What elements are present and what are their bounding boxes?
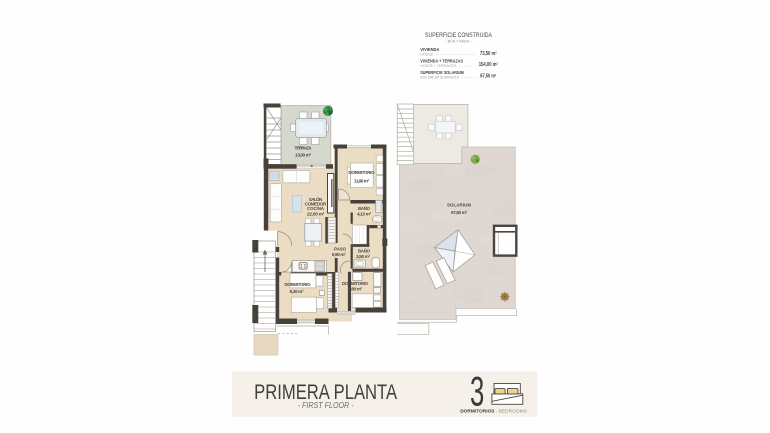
svg-text:- BUILT AREA -: - BUILT AREA -	[445, 39, 472, 44]
svg-text:BAÑO: BAÑO	[358, 249, 371, 254]
svg-text:0,90 m²: 0,90 m²	[332, 252, 346, 257]
svg-text:COCINA: COCINA	[307, 206, 325, 211]
svg-text:BAÑO: BAÑO	[358, 206, 371, 211]
svg-text:DORMITORIO: DORMITORIO	[349, 170, 376, 175]
svg-text:DORMITORIOS - BEDROOMS: DORMITORIOS - BEDROOMS	[460, 409, 527, 415]
svg-text:- FIRST FLOOR -: - FIRST FLOOR -	[298, 401, 354, 410]
svg-text:8,80 m²: 8,80 m²	[348, 287, 362, 292]
svg-text:67,50 m²: 67,50 m²	[451, 210, 467, 215]
svg-text:TERRAZA: TERRAZA	[295, 146, 313, 151]
svg-text:3,50 m²: 3,50 m²	[356, 254, 370, 259]
svg-text:22,00 m²: 22,00 m²	[307, 212, 325, 217]
svg-text:9,20 m²: 9,20 m²	[290, 289, 304, 294]
svg-text:HOUSE + TERRACES: HOUSE + TERRACES	[420, 63, 456, 68]
svg-text:SOLARIUM SURFACES: SOLARIUM SURFACES	[420, 74, 459, 79]
svg-text:67,50 m²: 67,50 m²	[480, 74, 496, 80]
svg-text:13,00 m²: 13,00 m²	[295, 153, 311, 158]
svg-text:PASO: PASO	[334, 247, 347, 252]
svg-text:154,00 m²: 154,00 m²	[479, 62, 498, 68]
svg-text:11,90 m²: 11,90 m²	[354, 179, 369, 184]
svg-text:73,50 m²: 73,50 m²	[480, 51, 497, 57]
svg-text:SOLARIUM: SOLARIUM	[447, 203, 471, 208]
svg-text:DORMITORIO: DORMITORIO	[342, 281, 369, 286]
svg-text:3: 3	[470, 369, 484, 415]
svg-text:4,10 m²: 4,10 m²	[357, 211, 371, 216]
svg-text:HOUSE: HOUSE	[420, 51, 433, 56]
svg-text:DORMITORIO: DORMITORIO	[285, 282, 312, 287]
